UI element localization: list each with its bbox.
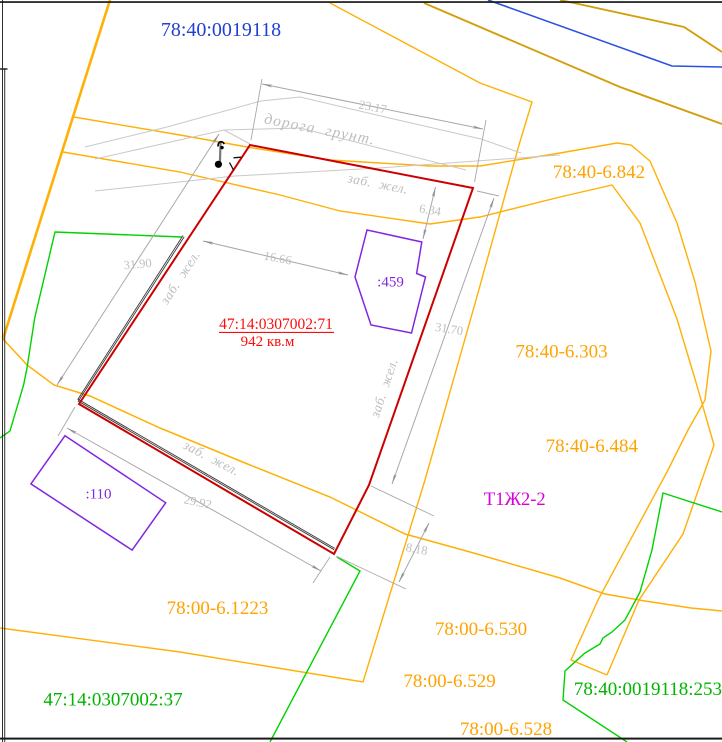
svg-text:16.66: 16.66 (263, 249, 293, 268)
svg-text:47:14:0307002:71: 47:14:0307002:71 (219, 316, 333, 333)
svg-text:78:40-6.842: 78:40-6.842 (553, 162, 645, 183)
svg-text:29.92: 29.92 (183, 492, 213, 512)
svg-text:31.70: 31.70 (434, 320, 464, 338)
svg-text:23.17: 23.17 (358, 98, 388, 117)
svg-text:78:40:0019118: 78:40:0019118 (161, 19, 281, 41)
svg-text::459: :459 (377, 275, 404, 291)
svg-text::110: :110 (85, 487, 111, 503)
svg-text:78:40:0019118:253: 78:40:0019118:253 (574, 679, 722, 700)
svg-text:78:00-6.530: 78:00-6.530 (435, 619, 527, 640)
svg-text:Т1Ж2-2: Т1Ж2-2 (484, 490, 546, 510)
svg-text:8.18: 8.18 (405, 540, 429, 558)
svg-text:6.34: 6.34 (418, 201, 443, 218)
svg-text:78:00-6.529: 78:00-6.529 (403, 671, 495, 692)
svg-text:78:00-6.1223: 78:00-6.1223 (167, 598, 269, 619)
svg-text:78:00-6.528: 78:00-6.528 (460, 719, 552, 740)
svg-text:942 кв.м: 942 кв.м (241, 334, 295, 350)
svg-text:дорога грунт.: дорога грунт. (263, 110, 377, 148)
svg-text:31.90: 31.90 (123, 256, 152, 272)
svg-text:78:40-6.303: 78:40-6.303 (515, 342, 607, 363)
svg-text:47:14:0307002:37: 47:14:0307002:37 (43, 690, 182, 711)
svg-text:78:40-6.484: 78:40-6.484 (546, 436, 639, 457)
